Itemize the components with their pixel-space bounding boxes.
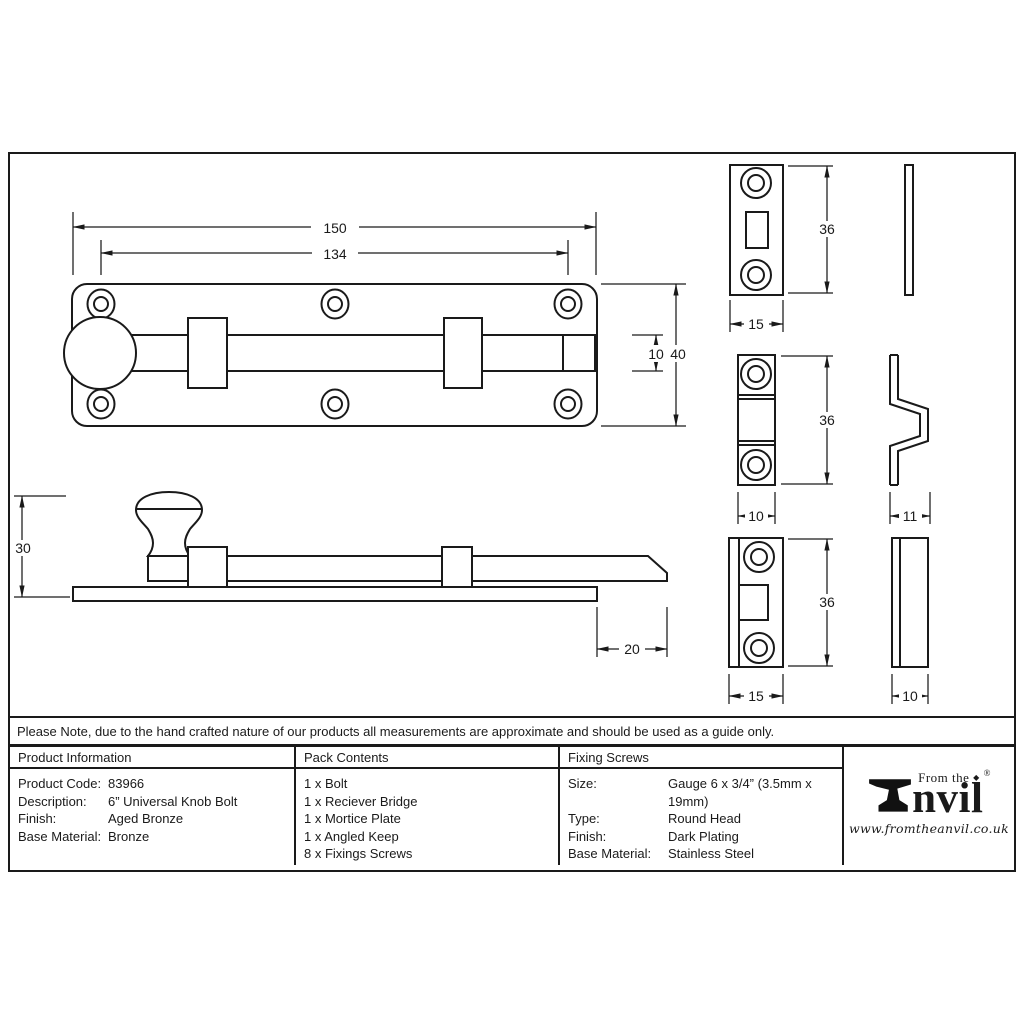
registered-mark: ®: [984, 768, 991, 778]
guide-bracket-right-side: [442, 547, 472, 587]
dim-bridge-10-label: 10: [748, 508, 764, 524]
dim-150-label: 150: [323, 220, 347, 236]
pack-item: 8 x Fixings Screws: [304, 845, 558, 863]
pack-item: 1 x Angled Keep: [304, 828, 558, 846]
angled-keep-front: [729, 538, 783, 667]
dim-bridge-36-label: 36: [819, 412, 835, 428]
table-row: Base Material:Stainless Steel: [568, 845, 842, 863]
dim-mortice-15-label: 15: [748, 316, 764, 332]
pack-contents-column: Pack Contents 1 x Bolt 1 x Reciever Brid…: [294, 747, 558, 865]
top-view-dimensions: [73, 212, 691, 426]
fixing-screws-column: Fixing Screws Size:Gauge 6 x 3/4” (3.5mm…: [558, 747, 842, 865]
anvil-icon: [867, 776, 913, 816]
pack-item: 1 x Mortice Plate: [304, 810, 558, 828]
angled-keep-side: [892, 538, 928, 667]
pack-item: 1 x Reciever Bridge: [304, 793, 558, 811]
logo-website: www.fromtheanvil.co.uk: [849, 821, 1009, 836]
guide-bracket-right: [444, 318, 482, 388]
table-row: Type:Round Head: [568, 810, 842, 828]
technical-drawing-area: 150 134 10 40: [10, 154, 1014, 716]
product-info-table: Product Information Product Code:83966 D…: [10, 744, 1014, 865]
mortice-plate-side: [905, 165, 913, 295]
fixing-screws-header: Fixing Screws: [560, 747, 842, 769]
dim-10-label: 10: [648, 346, 664, 362]
dim-bridge-11-label: 11: [903, 508, 918, 524]
dim-mortice-36-label: 36: [819, 221, 835, 237]
mortice-plate-front: [730, 165, 783, 295]
table-row: Finish:Dark Plating: [568, 828, 842, 846]
pack-contents-header: Pack Contents: [296, 747, 558, 769]
dim-keep-15-label: 15: [748, 688, 764, 704]
angled-keep-dimensions: [729, 539, 928, 704]
side-view-drawing: [73, 492, 667, 601]
base-plate-side: [73, 587, 597, 601]
dim-20-label: 20: [624, 641, 640, 657]
measurement-note: Please Note, due to the hand crafted nat…: [10, 716, 1014, 744]
datasheet-frame: 150 134 10 40: [8, 152, 1016, 872]
logo-wordmark: nvil: [912, 781, 991, 816]
from-the-anvil-logo: From the ◆ ® nvil www.fromtheanvil.co.uk: [849, 768, 1009, 836]
receiver-bridge-front: [738, 355, 775, 485]
table-row: Base Material:Bronze: [18, 828, 294, 846]
pack-item: 1 x Bolt: [304, 775, 558, 793]
product-information-column: Product Information Product Code:83966 D…: [10, 747, 294, 865]
table-row: Description:6” Universal Knob Bolt: [18, 793, 294, 811]
dim-keep-36-label: 36: [819, 594, 835, 610]
receiver-bridge-side: [890, 355, 928, 485]
top-view-drawing: [64, 284, 597, 426]
technical-drawing-svg: 150 134 10 40: [10, 154, 1014, 716]
table-row: Product Code:83966: [18, 775, 294, 793]
note-text: Please Note, due to the hand crafted nat…: [17, 724, 774, 739]
dim-keep-10-label: 10: [902, 688, 918, 704]
dim-134-label: 134: [323, 246, 347, 262]
dim-40-label: 40: [670, 346, 686, 362]
dim-30-label: 30: [15, 540, 31, 556]
guide-bracket-left: [188, 318, 227, 388]
knob-top-view: [64, 317, 136, 389]
product-information-header: Product Information: [10, 747, 294, 769]
guide-bracket-left-side: [188, 547, 227, 587]
table-row: Size:Gauge 6 x 3/4” (3.5mm x 19mm): [568, 775, 842, 810]
brand-logo-cell: From the ◆ ® nvil www.fromtheanvil.co.uk: [842, 747, 1014, 865]
table-row: Finish:Aged Bronze: [18, 810, 294, 828]
